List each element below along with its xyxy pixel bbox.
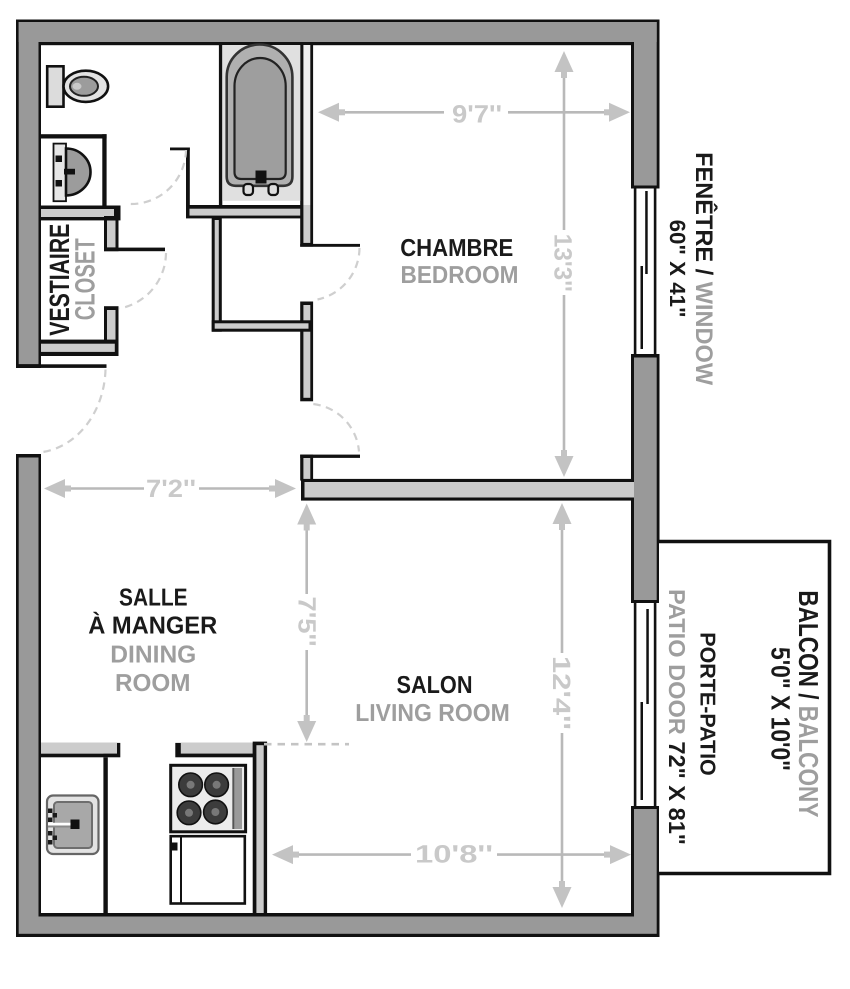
svg-text:CHAMBRE: CHAMBRE xyxy=(400,235,513,262)
svg-text:13'3'': 13'3'' xyxy=(549,234,577,292)
svg-text:60" X 41": 60" X 41" xyxy=(665,220,690,318)
svg-text:BEDROOM: BEDROOM xyxy=(401,262,519,289)
svg-text:PATIO DOOR 72" X 81": PATIO DOOR 72" X 81" xyxy=(664,589,690,845)
svg-text:CLOSET: CLOSET xyxy=(70,238,101,320)
svg-text:7'2'': 7'2'' xyxy=(146,475,196,503)
svg-text:10'8'': 10'8'' xyxy=(415,841,493,869)
svg-text:À MANGER: À MANGER xyxy=(88,612,217,640)
svg-text:PORTE-PATIO: PORTE-PATIO xyxy=(696,632,720,776)
svg-text:DINING: DINING xyxy=(110,642,196,669)
svg-text:ROOM: ROOM xyxy=(115,670,191,697)
svg-text:SALLE: SALLE xyxy=(119,585,188,612)
svg-text:LIVING ROOM: LIVING ROOM xyxy=(355,700,510,727)
svg-text:5'0" X 10'0": 5'0" X 10'0" xyxy=(766,647,796,771)
svg-text:SALON: SALON xyxy=(397,672,473,699)
svg-text:9'7'': 9'7'' xyxy=(452,101,502,129)
svg-text:BALCON / BALCONY: BALCON / BALCONY xyxy=(793,590,824,817)
svg-text:FENÊTRE / WINDOW: FENÊTRE / WINDOW xyxy=(690,152,718,385)
svg-text:12'4'': 12'4'' xyxy=(547,656,575,730)
svg-text:7'5'': 7'5'' xyxy=(293,597,321,647)
